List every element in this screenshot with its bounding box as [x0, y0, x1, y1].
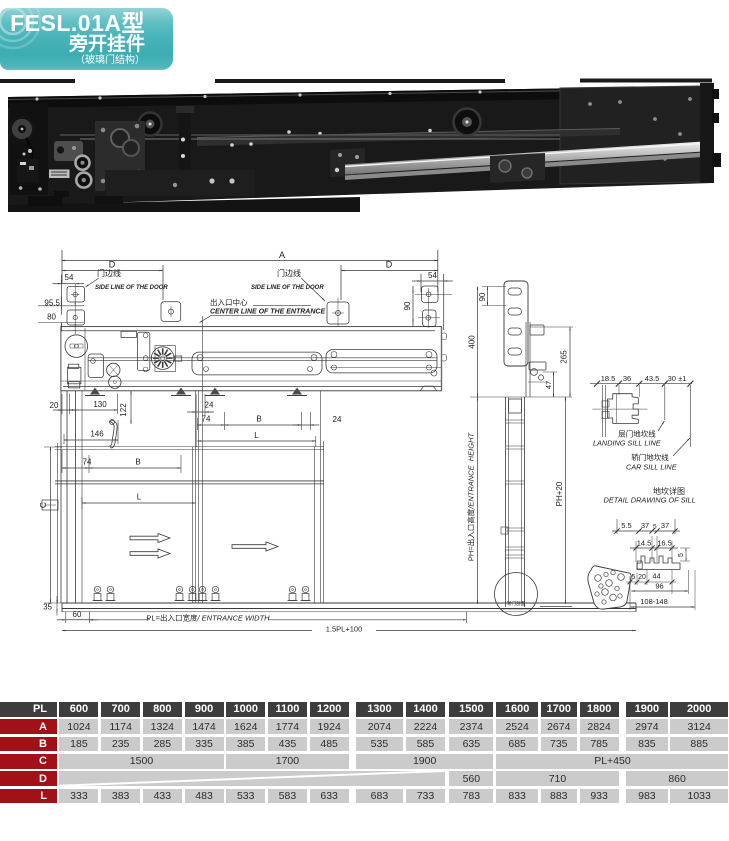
- svg-text:400: 400: [468, 335, 477, 349]
- svg-text:96: 96: [655, 582, 663, 591]
- svg-text:146: 146: [90, 430, 104, 439]
- svg-text:PH+20: PH+20: [555, 481, 564, 506]
- svg-text:36: 36: [623, 374, 631, 383]
- svg-text:SIDE LINE OF THE DOOR: SIDE LINE OF THE DOOR: [95, 285, 168, 291]
- svg-text:90: 90: [478, 292, 487, 301]
- svg-text:44: 44: [652, 572, 660, 581]
- svg-text:5: 5: [678, 553, 685, 557]
- svg-text:74: 74: [202, 415, 211, 424]
- svg-text:60: 60: [73, 610, 82, 619]
- svg-text:24: 24: [205, 401, 214, 410]
- svg-text:5: 5: [632, 574, 636, 581]
- svg-text:30 ±1: 30 ±1: [668, 374, 687, 383]
- svg-text:L: L: [137, 493, 142, 502]
- svg-text:B: B: [135, 458, 140, 467]
- svg-text:47: 47: [544, 381, 553, 389]
- svg-text:24: 24: [333, 415, 342, 424]
- svg-text:门边线: 门边线: [97, 268, 121, 278]
- svg-text:1.5PL+100: 1.5PL+100: [326, 625, 363, 634]
- svg-text:16.5: 16.5: [657, 539, 672, 548]
- svg-text:130: 130: [93, 400, 107, 409]
- svg-text:14.5: 14.5: [637, 539, 652, 548]
- svg-text:20: 20: [638, 574, 646, 581]
- svg-text:80: 80: [47, 313, 56, 322]
- svg-text:层门地坎线: 层门地坎线: [618, 429, 656, 439]
- svg-text:PL=出入口宽度/ ENTRANCE WIDTH: PL=出入口宽度/ ENTRANCE WIDTH: [146, 613, 270, 623]
- svg-text:地坎详图: 地坎详图: [653, 486, 685, 496]
- svg-text:D: D: [386, 260, 393, 270]
- svg-text:37: 37: [661, 521, 669, 530]
- svg-text:35: 35: [43, 603, 52, 612]
- svg-text:门边线: 门边线: [277, 268, 301, 278]
- svg-text:37: 37: [641, 521, 649, 530]
- svg-text:轿门剖面: 轿门剖面: [507, 600, 525, 607]
- svg-text:CAR SILL LINE: CAR SILL LINE: [626, 462, 677, 471]
- svg-text:PH=出入口高度/ENTRANCE HEIGHT: PH=出入口高度/ENTRANCE HEIGHT: [466, 432, 476, 562]
- svg-text:54: 54: [65, 273, 74, 282]
- svg-text:CENTER LINE OF THE ENTRANCE: CENTER LINE OF THE ENTRANCE: [210, 309, 325, 316]
- svg-text:90: 90: [403, 301, 412, 310]
- svg-text:18.5: 18.5: [601, 374, 616, 383]
- svg-text:L: L: [254, 431, 259, 440]
- svg-text:轿门地坎线: 轿门地坎线: [631, 452, 669, 462]
- svg-text:LANDING SILL LINE: LANDING SILL LINE: [593, 439, 661, 448]
- svg-text:出入口中心: 出入口中心: [210, 297, 248, 307]
- svg-text:108-148: 108-148: [640, 597, 668, 606]
- svg-text:265: 265: [560, 350, 569, 364]
- svg-text:74: 74: [83, 458, 92, 467]
- svg-text:A: A: [279, 250, 285, 260]
- svg-text:D: D: [109, 260, 116, 270]
- svg-text:43.5: 43.5: [645, 374, 660, 383]
- svg-text:122: 122: [119, 403, 128, 417]
- svg-text:54: 54: [428, 271, 437, 280]
- svg-text:20: 20: [50, 401, 59, 410]
- svg-text:5: 5: [653, 523, 657, 530]
- svg-text:95.5: 95.5: [44, 299, 60, 308]
- svg-text:5.5: 5.5: [621, 521, 631, 530]
- svg-text:DETAIL DRAWING OF SILL: DETAIL DRAWING OF SILL: [604, 496, 696, 505]
- svg-text:B: B: [256, 415, 261, 424]
